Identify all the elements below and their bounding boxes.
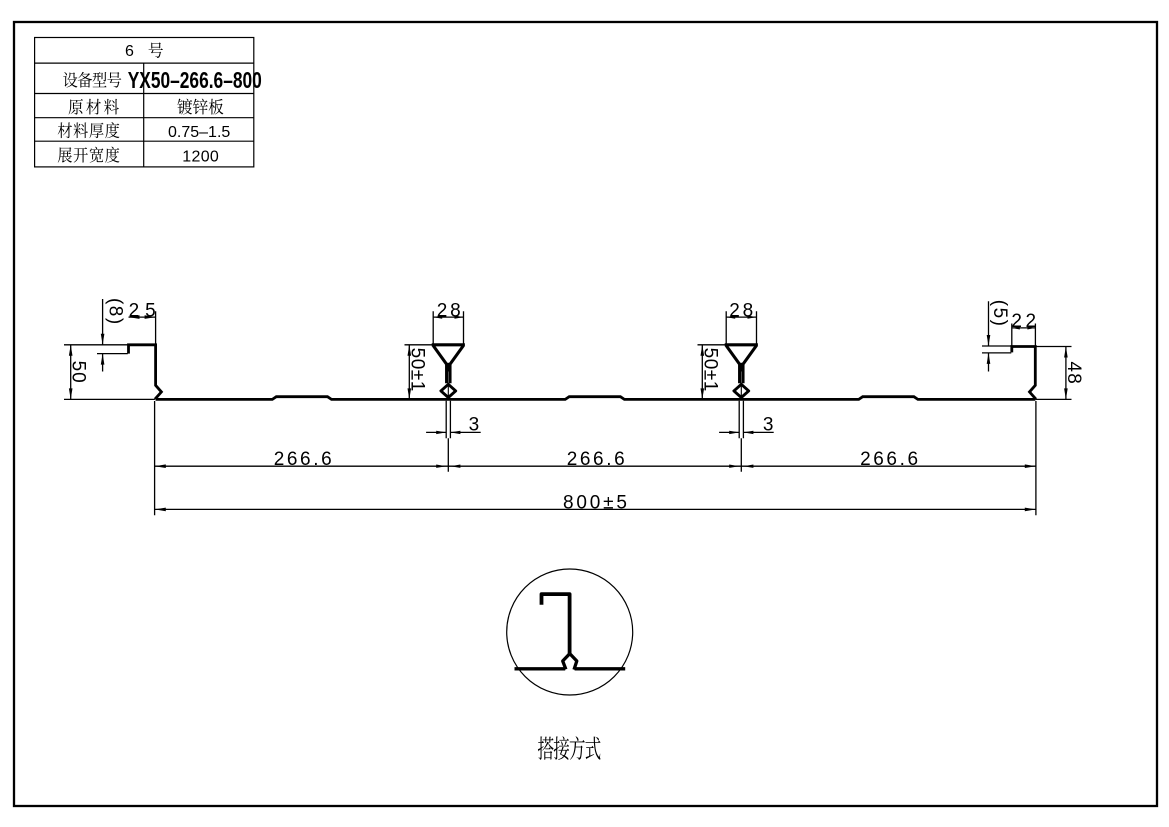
svg-text:266.6: 266.6 — [860, 449, 921, 470]
svg-text:(8): (8) — [105, 298, 126, 326]
svg-text:YX50–266.6–800: YX50–266.6–800 — [128, 67, 262, 93]
svg-text:22: 22 — [1011, 311, 1039, 332]
svg-text:0.75–1.5: 0.75–1.5 — [168, 124, 230, 141]
svg-text:50±1: 50±1 — [699, 348, 720, 392]
svg-text:3: 3 — [763, 415, 774, 436]
svg-text:(5): (5) — [989, 300, 1010, 328]
svg-text:50: 50 — [67, 361, 88, 384]
svg-text:6: 6 — [125, 43, 134, 60]
svg-text:50±1: 50±1 — [406, 348, 427, 392]
svg-text:28: 28 — [729, 300, 756, 321]
svg-text:3: 3 — [469, 415, 480, 436]
svg-text:25: 25 — [129, 300, 162, 321]
svg-text:800±5: 800±5 — [563, 492, 630, 513]
svg-text:1200: 1200 — [182, 148, 219, 165]
svg-text:28: 28 — [437, 300, 464, 321]
svg-text:266.6: 266.6 — [274, 449, 335, 470]
svg-text:48: 48 — [1063, 361, 1084, 385]
svg-text:266.6: 266.6 — [567, 449, 628, 470]
